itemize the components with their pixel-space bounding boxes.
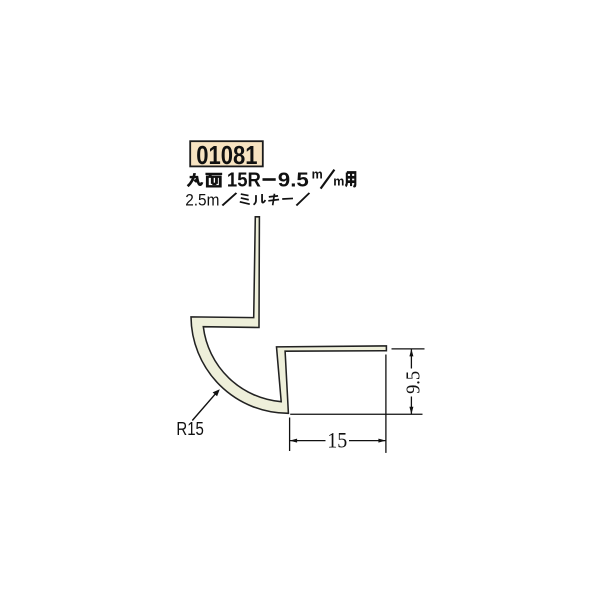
svg-text:2.5m: 2.5m bbox=[185, 192, 219, 210]
svg-text:15: 15 bbox=[327, 428, 347, 453]
svg-text:m: m bbox=[312, 168, 323, 182]
svg-text:9.5: 9.5 bbox=[278, 168, 309, 191]
svg-text:m: m bbox=[333, 174, 344, 188]
svg-text:15R: 15R bbox=[227, 168, 261, 191]
svg-text:R15: R15 bbox=[176, 418, 204, 439]
svg-text:01081: 01081 bbox=[196, 142, 257, 170]
svg-text:9.5: 9.5 bbox=[403, 371, 425, 394]
